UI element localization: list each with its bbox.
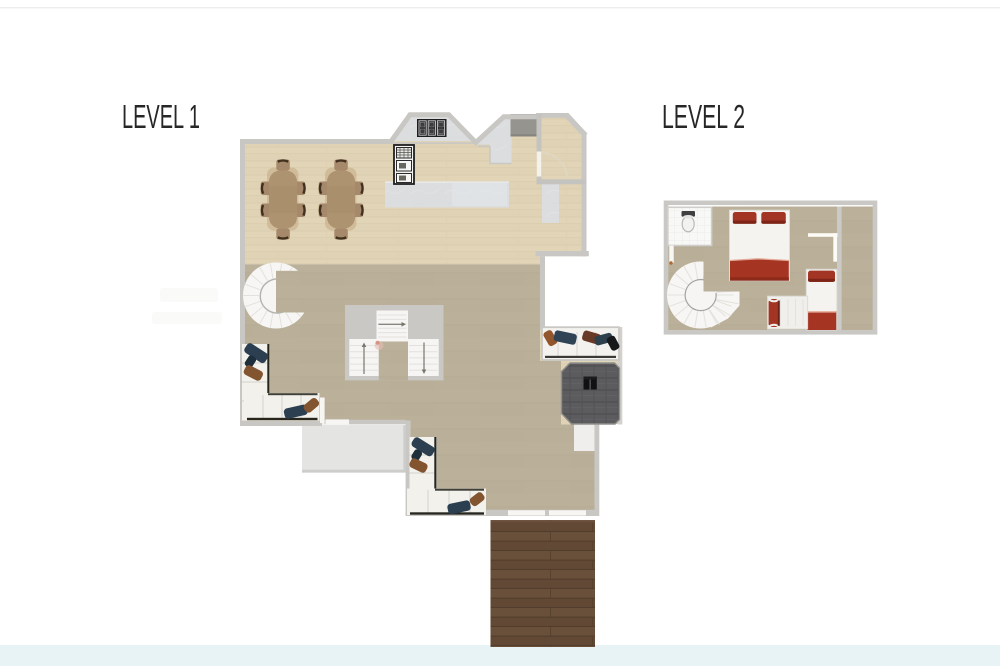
svg-text:LEVEL 2: LEVEL 2: [662, 98, 745, 135]
svg-text:LEVEL 1: LEVEL 1: [122, 98, 200, 135]
